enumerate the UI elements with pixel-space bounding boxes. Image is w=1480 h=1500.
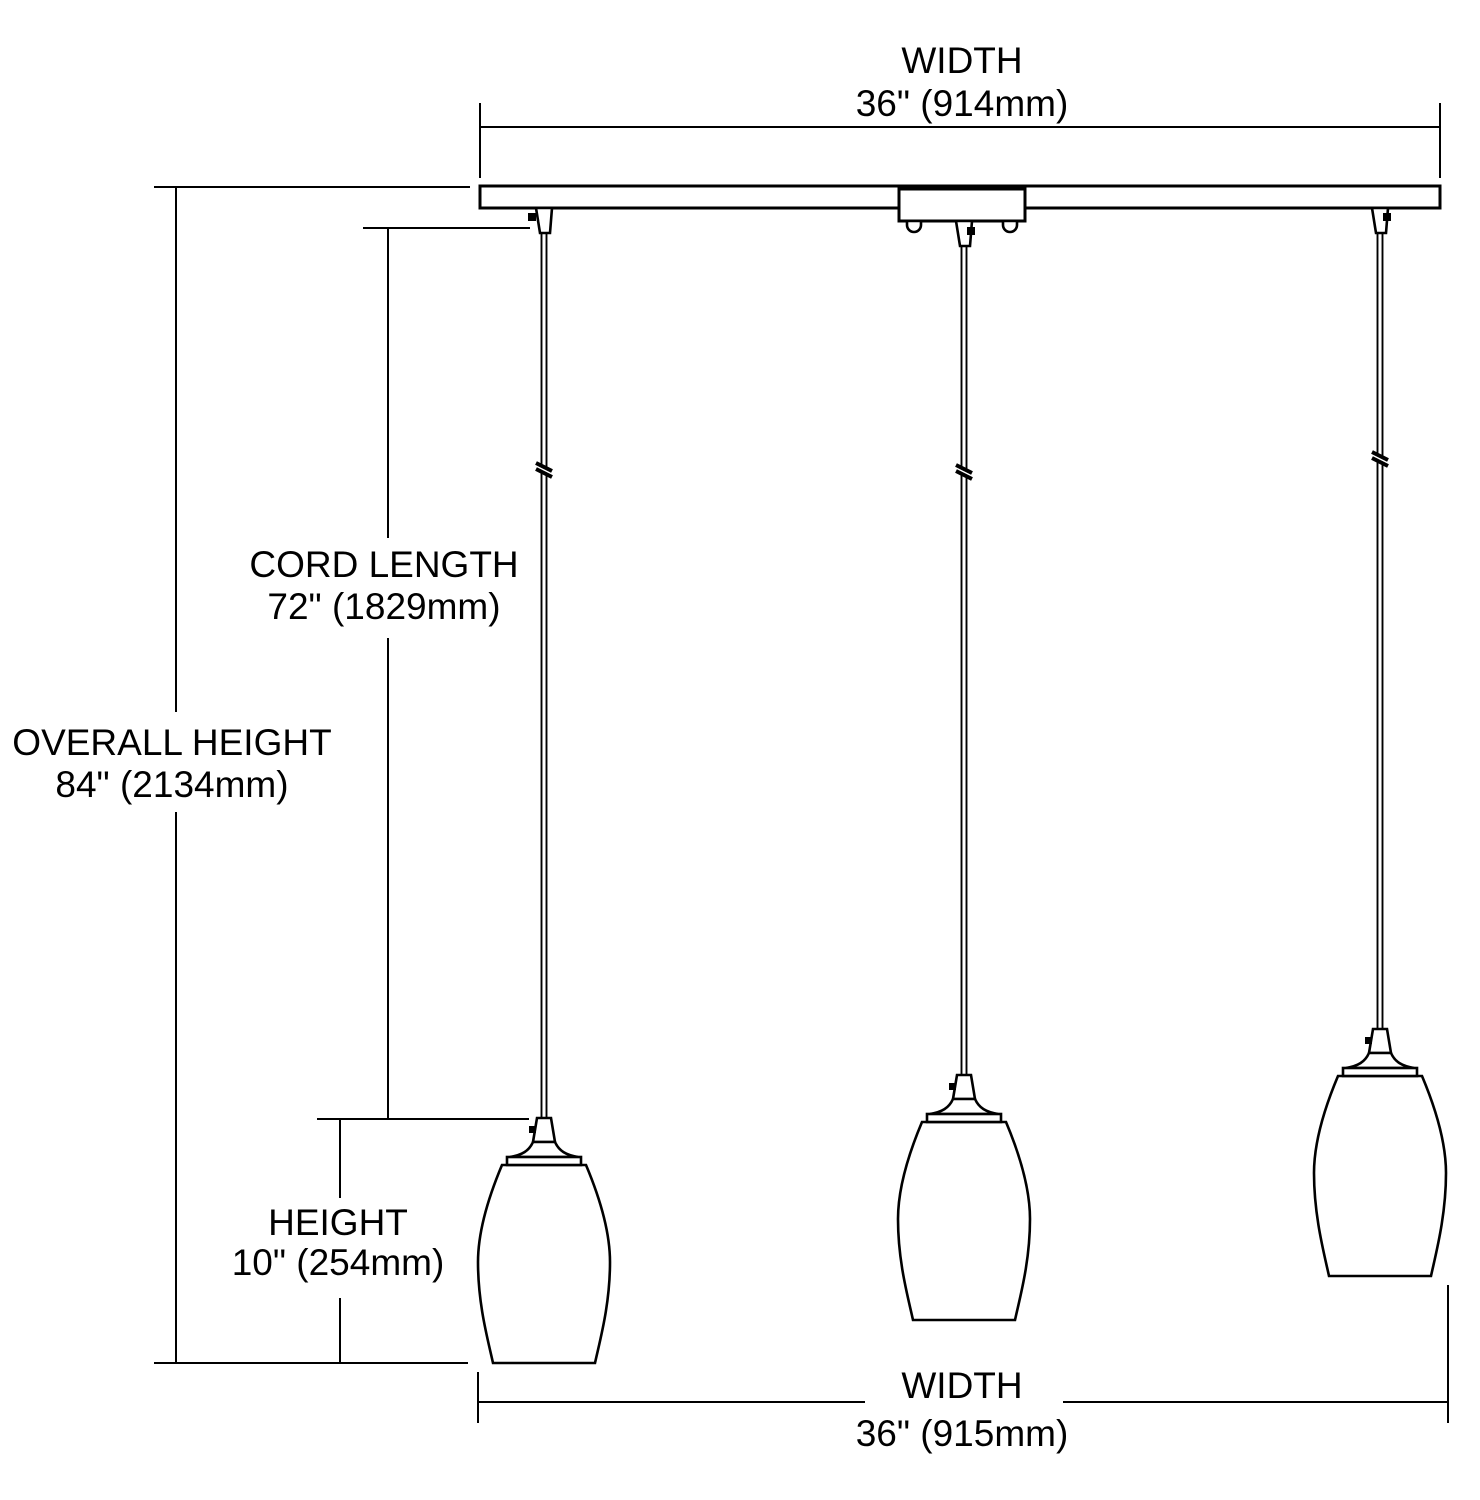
cord-length-value: 72" (1829mm) [267, 586, 500, 627]
top-width-label: WIDTH [901, 40, 1022, 81]
bottom-width-label: WIDTH [901, 1365, 1022, 1406]
cord-gripper-left-setscrew [528, 213, 536, 221]
pendant-center [898, 1075, 1030, 1320]
pendant-left-socket-bell [510, 1142, 578, 1157]
pendant-center-socket-neck [953, 1075, 975, 1099]
pendant-left-shade-rim [507, 1157, 581, 1165]
pendant-right-socket-neck [1369, 1029, 1391, 1053]
pendant-cord-left [536, 233, 552, 1118]
pendant-center-socket-setscrew [949, 1083, 956, 1090]
pendant-right-glass-shade [1314, 1076, 1446, 1276]
shade-height-dimension: HEIGHT 10" (254mm) [232, 1119, 445, 1363]
pendant-center-glass-shade [898, 1122, 1030, 1320]
cord-gripper-center-setscrew [967, 227, 975, 235]
pendant-cord-right [1372, 233, 1388, 1029]
cord-gripper-right-setscrew [1383, 213, 1391, 221]
pendant-dimension-diagram: WIDTH 36" (914mm) OVERALL HEIGHT 84" (21… [0, 0, 1480, 1500]
overall-height-dimension: OVERALL HEIGHT 84" (2134mm) [12, 187, 470, 1363]
top-width-dimension: WIDTH 36" (914mm) [480, 40, 1440, 178]
mounting-screw-left [907, 221, 921, 232]
pendant-right-socket-bell [1346, 1053, 1414, 1068]
mounting-screw-right [1003, 221, 1017, 232]
shade-height-label: HEIGHT [268, 1202, 408, 1243]
pendant-center-shade-rim [927, 1114, 1001, 1122]
pendant-right-socket-setscrew [1365, 1037, 1372, 1044]
cord-length-dimension: CORD LENGTH 72" (1829mm) [249, 228, 530, 1119]
top-width-value: 36" (914mm) [856, 83, 1069, 124]
pendant-center-socket-bell [930, 1099, 998, 1114]
pendant-left [478, 1118, 610, 1363]
pendant-left-glass-shade [478, 1165, 610, 1363]
shade-height-value: 10" (254mm) [232, 1242, 445, 1283]
center-mounting-box [899, 189, 1025, 221]
pendant-right [1314, 1029, 1446, 1276]
diagram-canvas: WIDTH 36" (914mm) OVERALL HEIGHT 84" (21… [0, 0, 1480, 1500]
pendant-right-shade-rim [1343, 1068, 1417, 1076]
pendant-left-socket-setscrew [529, 1126, 536, 1133]
pendant-left-socket-neck [533, 1118, 555, 1142]
bottom-width-value: 36" (915mm) [856, 1413, 1069, 1454]
cord-length-label: CORD LENGTH [249, 544, 518, 585]
cord-gripper-left [536, 208, 552, 233]
overall-height-label: OVERALL HEIGHT [12, 722, 331, 763]
pendant-cord-center [956, 246, 972, 1075]
overall-height-value: 84" (2134mm) [55, 764, 288, 805]
